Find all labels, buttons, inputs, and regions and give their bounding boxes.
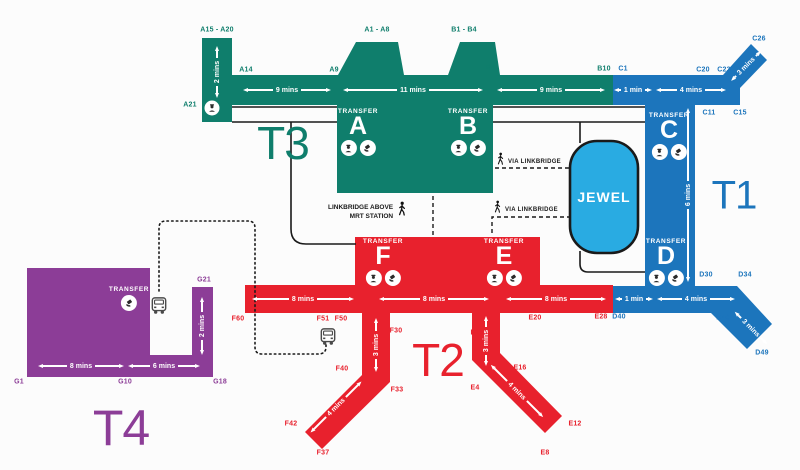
gate-label: E16: [513, 365, 526, 372]
gate-label: A15 - A20: [200, 27, 233, 34]
walk-time-arrow: 8 mins: [38, 362, 124, 370]
walk-time-arrow: 8 mins: [506, 295, 606, 303]
walk-time-label: 2 mins: [214, 58, 221, 86]
walk-time-arrow: 8 mins: [252, 295, 354, 303]
mrt-note-line2: MRT STATION: [328, 212, 393, 221]
gate-label: F30: [390, 328, 403, 335]
walk-time-arrow: 4 mins: [656, 86, 726, 94]
mrt-station-note: LINKBRIDGE ABOVE MRT STATION: [328, 201, 408, 222]
walk-time-label: 8 mins: [67, 363, 95, 370]
walk-time-label: 8 mins: [542, 296, 570, 303]
walk-time-arrow: 3 mins: [372, 318, 380, 372]
transfer-letter: F: [363, 245, 403, 268]
arrowhead-icon: [484, 361, 488, 366]
corridor-outline-t3-t1: [493, 107, 645, 122]
gate-label: F40: [336, 366, 349, 373]
walk-time-arrow: 9 mins: [243, 86, 331, 94]
walk-time-arrow: 9 mins: [497, 86, 605, 94]
gate-label: F50: [335, 316, 348, 323]
linkbridge-note-top-text: VIA LINKBRIDGE: [508, 159, 561, 165]
walking-person-icon: [492, 200, 503, 219]
walk-time-arrow: 3 mins: [482, 316, 490, 366]
gate-label: F37: [317, 450, 330, 457]
gate-label: C11: [702, 110, 715, 117]
arrowhead-icon: [200, 297, 204, 302]
arrowhead-icon: [374, 318, 378, 323]
arrowhead-icon: [730, 297, 735, 301]
transfer-letter: C: [649, 119, 689, 142]
walk-time-label: 1 min: [622, 296, 646, 303]
transfer-counter-icon: [359, 140, 375, 156]
gate-label: A14: [239, 67, 252, 74]
gate-label: G1: [14, 379, 24, 386]
changi-terminal-map: JEWEL VIA LINKBRIDGE VIA LINKBRIDGE LINK…: [0, 0, 800, 470]
walk-time-label: 3 mins: [373, 331, 380, 359]
walk-time-label: 9 mins: [273, 87, 301, 94]
transfer-counter-icon: [384, 270, 400, 286]
transfer-label: TRANSFER: [109, 286, 149, 293]
t4-terminal-shape: [27, 268, 213, 377]
transfer-point-b: TRANSFERB: [448, 108, 488, 156]
walk-time-arrow: 11 mins: [343, 86, 483, 94]
terminal-label-t4: T4: [93, 399, 149, 457]
arrowhead-icon: [215, 93, 219, 98]
arrowhead-icon: [478, 88, 483, 92]
gate-label: D49: [755, 350, 768, 357]
walk-time-label: 2 mins: [199, 312, 206, 340]
transfer-counter-icon: [670, 144, 686, 160]
walk-time-arrow: 4 mins: [657, 295, 735, 303]
gate-label: E20: [528, 315, 541, 322]
transfer-letter: B: [448, 115, 488, 138]
walk-time-label: 8 mins: [420, 296, 448, 303]
gate-label: E12: [568, 421, 581, 428]
arrowhead-icon: [721, 88, 726, 92]
transfer-point-a: TRANSFERA: [338, 108, 378, 156]
walk-time-label: 9 mins: [537, 87, 565, 94]
walk-time-label: 11 mins: [397, 87, 429, 94]
gate-label: G10: [118, 379, 132, 386]
walk-time-arrow: 2 mins: [213, 46, 221, 98]
gate-label: A21: [183, 102, 196, 109]
mrt-note-line1: LINKBRIDGE ABOVE: [328, 203, 393, 212]
gate-label: E28: [594, 314, 607, 321]
shuttle-bus-icon: [149, 295, 169, 315]
terminal-label-t3: T3: [257, 116, 309, 170]
immigration-officer-icon: [651, 144, 667, 160]
walk-time-arrow: 2 mins: [198, 297, 206, 355]
arrowhead-icon: [195, 364, 200, 368]
gate-label: G21: [197, 277, 211, 284]
arrowhead-icon: [357, 380, 363, 386]
gate-label: C26: [752, 36, 765, 43]
transfer-counter-icon: [505, 270, 521, 286]
gate-label: C1: [618, 66, 627, 73]
walk-time-label: 6 mins: [685, 181, 692, 209]
gate-label: D40: [612, 314, 625, 321]
walk-time-label: 1 min: [621, 87, 645, 94]
transfer-letter: A: [338, 115, 378, 138]
walk-time-arrow: 6 mins: [128, 362, 200, 370]
gate-label: D30: [699, 272, 712, 279]
gate-label: C20: [696, 67, 709, 74]
gate-label: F60: [232, 316, 245, 323]
walk-time-label: 8 mins: [289, 296, 317, 303]
immigration-officer-icon: [205, 101, 220, 116]
gate-label: G18: [213, 379, 227, 386]
walk-time-label: 4 mins: [682, 296, 710, 303]
transfer-letter: D: [646, 245, 686, 268]
walk-time-label: 3 mins: [483, 327, 490, 355]
terminal-label-t1: T1: [712, 174, 757, 219]
shuttle-bus-icon: [318, 326, 338, 346]
gate-label: D46: [716, 315, 729, 322]
gate-label: D34: [738, 272, 751, 279]
walk-time-arrow: 1 min: [615, 295, 653, 303]
arrowhead-icon: [648, 297, 653, 301]
gate-label: F33: [391, 387, 404, 394]
linkbridge-note-top: VIA LINKBRIDGE: [495, 152, 561, 171]
gate-label: B5: [486, 65, 495, 72]
transfer-point-f: TRANSFERF: [363, 238, 403, 286]
arrowhead-icon: [686, 277, 690, 282]
arrowhead-icon: [647, 88, 652, 92]
arrowhead-icon: [484, 316, 488, 321]
transfer-counter-icon: [121, 295, 137, 311]
terminal-label-t2: T2: [412, 333, 464, 387]
walk-time-arrow: 8 mins: [379, 295, 489, 303]
gate-label: C15: [733, 110, 746, 117]
arrowhead-icon: [326, 88, 331, 92]
immigration-officer-icon: [486, 270, 502, 286]
linkbridge-route-mid: [492, 217, 571, 236]
arrowhead-icon: [600, 88, 605, 92]
transfer-letter: E: [484, 245, 524, 268]
immigration-officer-icon: [648, 270, 664, 286]
arrowhead-icon: [601, 297, 606, 301]
walk-time-label: 6 mins: [150, 363, 178, 370]
walking-person-icon: [396, 201, 408, 222]
gate-label: A1 - A8: [364, 27, 389, 34]
jewel-label: JEWEL: [577, 189, 630, 205]
walk-time-arrow: 1 min: [614, 86, 652, 94]
gate-label: B10: [597, 66, 610, 73]
immigration-officer-icon: [365, 270, 381, 286]
gate-label: B1 - B4: [451, 27, 477, 34]
linkbridge-note-mid: VIA LINKBRIDGE: [492, 200, 558, 219]
immigration-officer-icon: [340, 140, 356, 156]
arrowhead-icon: [200, 350, 204, 355]
walking-person-icon: [495, 152, 506, 171]
gate-label: F51: [317, 316, 330, 323]
transfer-point-e: TRANSFERE: [484, 238, 524, 286]
arrowhead-icon: [349, 297, 354, 301]
arrowhead-icon: [119, 364, 124, 368]
transfer-point-c: TRANSFERC: [649, 112, 689, 160]
gate-label: F42: [285, 421, 298, 428]
arrowhead-icon: [756, 50, 762, 56]
arrowhead-icon: [374, 367, 378, 372]
a21-transfer-counter: [205, 101, 220, 116]
transfer-counter-icon: [667, 270, 683, 286]
gate-label: E8: [541, 450, 550, 457]
immigration-officer-icon: [450, 140, 466, 156]
gate-label: E4: [471, 385, 480, 392]
arrowhead-icon: [484, 297, 489, 301]
linkbridge-note-mid-text: VIA LINKBRIDGE: [505, 207, 558, 213]
walk-time-label: 4 mins: [677, 87, 705, 94]
transfer-counter-icon: [469, 140, 485, 156]
gate-label: E1: [471, 330, 480, 337]
transfer-point-d: TRANSFERD: [646, 238, 686, 286]
transfer-point-t4: TRANSFER: [109, 286, 149, 311]
gate-label: C23: [717, 67, 730, 74]
gate-label: A9: [329, 67, 338, 74]
arrowhead-icon: [215, 46, 219, 51]
